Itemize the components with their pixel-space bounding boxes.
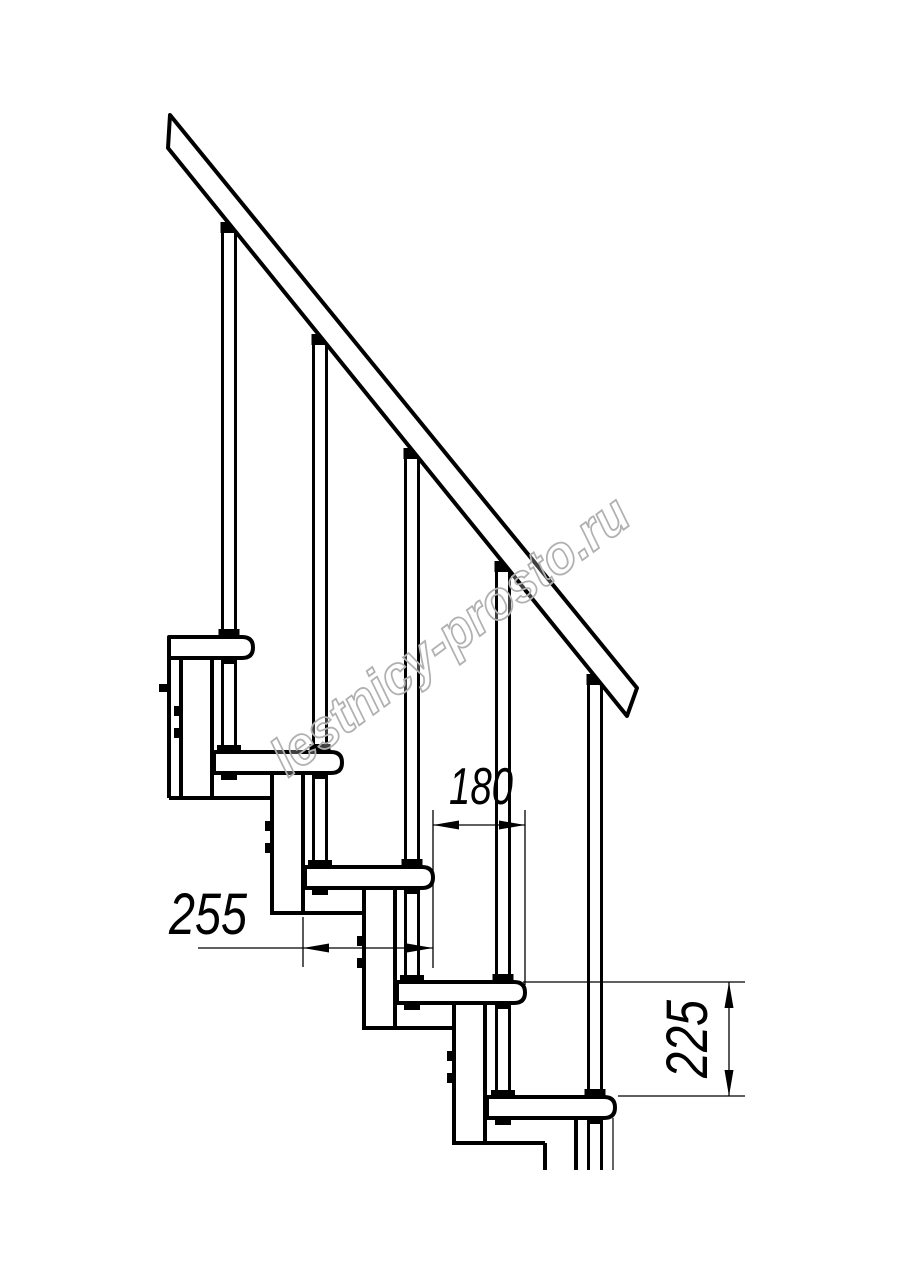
dimension-label-tread-depth: 255 [168,882,247,947]
dimension-going: 180 [433,758,525,985]
arrow-up-icon [725,982,734,1008]
bolt [159,684,169,692]
support-leg [364,888,395,1028]
spacer-rod-partial [587,1118,603,1170]
dimension-label-rise: 225 [655,999,720,1078]
bolt [174,728,181,738]
baluster [219,222,240,637]
technical-drawing-page: 180 255 225 lestnicy-prosto.ru [0,0,914,1280]
support-leg [272,773,303,913]
tread [487,1097,615,1118]
arrow-right-icon [499,821,525,830]
dimension-rise: 225 [523,982,745,1096]
tread [169,637,253,658]
bolt [357,958,364,968]
support-leg [454,1003,485,1143]
handrail [168,115,637,716]
bolt [447,1073,454,1083]
dimension-label-going: 180 [449,758,513,816]
bolt [174,706,181,716]
tread [305,867,433,888]
bolt [265,843,272,853]
tread [397,982,525,1003]
arrow-left-icon [433,821,459,830]
bolt [447,1051,454,1061]
arrow-left-icon [303,944,329,953]
bolt [357,936,364,946]
arrow-down-icon [725,1070,734,1096]
bolt [265,821,272,831]
staircase-side-elevation: 180 255 225 lestnicy-prosto.ru [0,0,914,1280]
baluster [585,674,606,1097]
support-leg [181,658,212,798]
